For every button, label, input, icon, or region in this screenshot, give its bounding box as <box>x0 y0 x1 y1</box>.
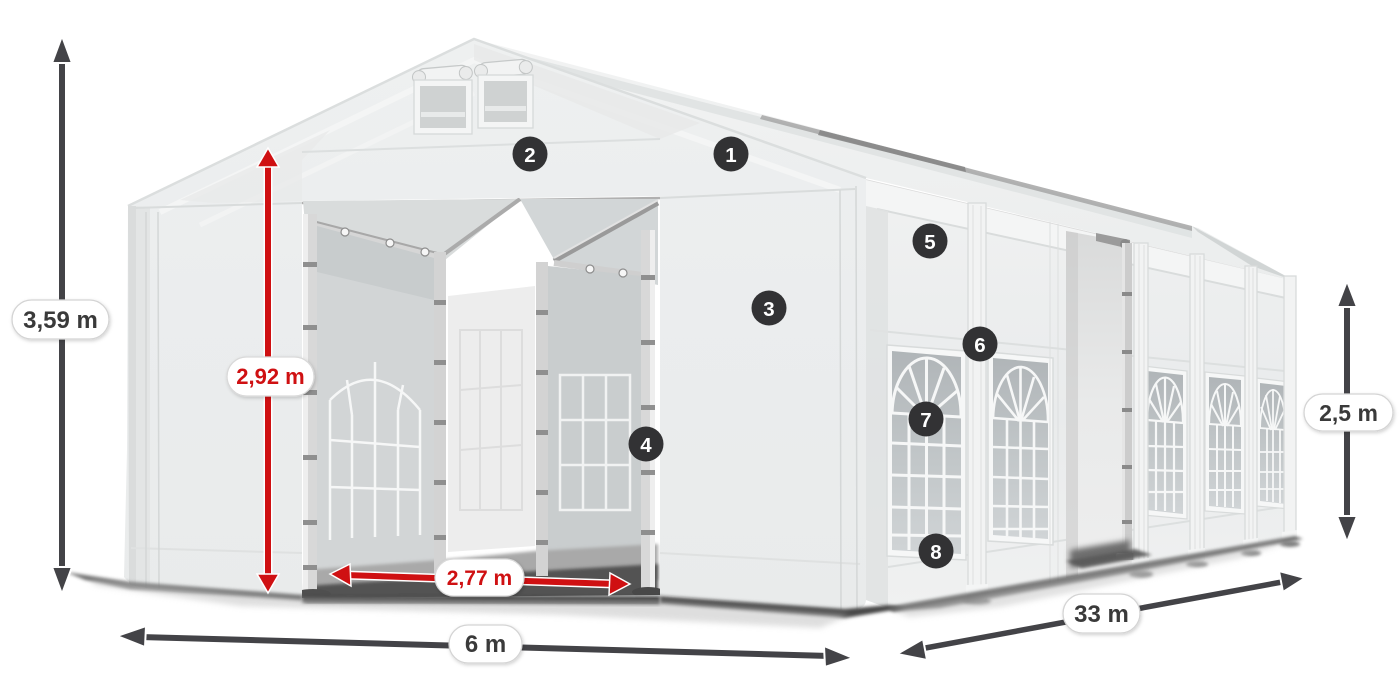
svg-text:1: 1 <box>725 144 736 167</box>
svg-text:4: 4 <box>640 434 652 457</box>
svg-text:7: 7 <box>920 409 931 432</box>
svg-text:5: 5 <box>924 231 935 254</box>
svg-text:2: 2 <box>524 144 535 167</box>
svg-text:2,77 m: 2,77 m <box>447 567 512 590</box>
svg-text:2,92 m: 2,92 m <box>236 364 305 389</box>
svg-text:2,5 m: 2,5 m <box>1319 400 1378 426</box>
svg-text:8: 8 <box>930 541 941 564</box>
svg-text:3: 3 <box>763 298 774 321</box>
svg-text:33 m: 33 m <box>1074 601 1129 628</box>
svg-text:6: 6 <box>974 334 985 357</box>
svg-text:6 m: 6 m <box>465 631 506 658</box>
svg-text:3,59 m: 3,59 m <box>23 307 98 334</box>
